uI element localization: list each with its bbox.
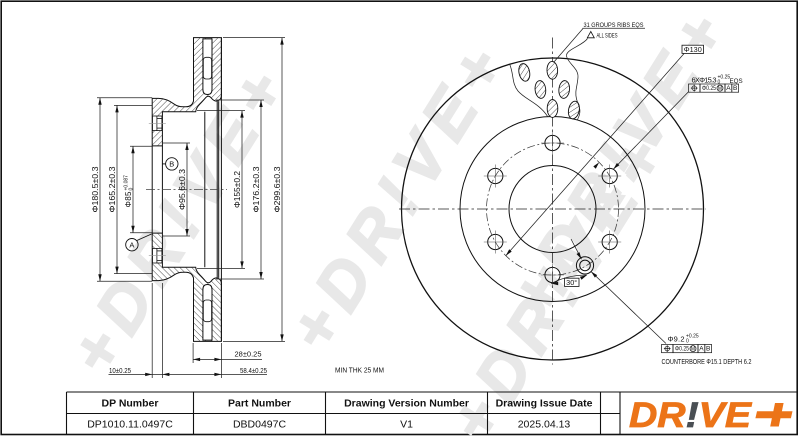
svg-text:Φ9.2: Φ9.2 — [668, 335, 685, 344]
svg-text:30°: 30° — [566, 279, 577, 287]
svg-text:M: M — [718, 86, 722, 92]
svg-text:Φ0.25: Φ0.25 — [702, 85, 716, 92]
svg-text:Φ299.6±0.3: Φ299.6±0.3 — [273, 166, 282, 213]
svg-text:0: 0 — [129, 188, 135, 191]
svg-text:Drawing Issue Date: Drawing Issue Date — [496, 398, 593, 410]
svg-text:Φ176.2±0.3: Φ176.2±0.3 — [252, 166, 261, 213]
svg-text:Part Number: Part Number — [228, 398, 291, 410]
svg-text:Φ180.5±0.3: Φ180.5±0.3 — [91, 166, 100, 213]
svg-text:A: A — [129, 240, 134, 249]
svg-text:B: B — [706, 346, 710, 353]
svg-text:M: M — [691, 347, 695, 353]
svg-text:28±0.25: 28±0.25 — [235, 350, 262, 359]
svg-text:Φ130: Φ130 — [684, 45, 702, 54]
svg-text:ALL SIDES: ALL SIDES — [597, 34, 618, 40]
svg-text:MIN THK 25 MM: MIN THK 25 MM — [335, 366, 384, 375]
svg-text:COUNTERBORE Φ15.1 DEPTH 6.2: COUNTERBORE Φ15.1 DEPTH 6.2 — [662, 359, 752, 366]
svg-text:Φ155±0.2: Φ155±0.2 — [233, 170, 242, 208]
svg-text:0: 0 — [686, 339, 689, 345]
svg-text:A: A — [726, 85, 731, 92]
svg-text:0: 0 — [718, 80, 721, 86]
svg-text:31 GROUPS RIBS EQS: 31 GROUPS RIBS EQS — [584, 22, 645, 29]
svg-text:Φ95.6±0.3: Φ95.6±0.3 — [178, 168, 187, 210]
svg-text:A: A — [699, 346, 704, 353]
svg-text:Drawing Version Number: Drawing Version Number — [344, 398, 469, 410]
svg-text:Φ165.2±0.3: Φ165.2±0.3 — [108, 166, 117, 213]
svg-text:V1: V1 — [400, 419, 413, 431]
svg-text:DP Number: DP Number — [102, 398, 159, 410]
svg-text:58.4±0.25: 58.4±0.25 — [240, 366, 267, 375]
svg-text:B: B — [733, 85, 737, 92]
svg-text:6XΦ15.3: 6XΦ15.3 — [692, 76, 717, 85]
svg-text:10±0.25: 10±0.25 — [109, 366, 131, 375]
svg-text:DBD0497C: DBD0497C — [233, 419, 287, 431]
svg-text:DR!VE: DR!VE — [629, 396, 753, 435]
svg-text:DP1010.11.0497C: DP1010.11.0497C — [87, 419, 173, 431]
svg-text:B: B — [169, 160, 174, 169]
svg-text:Φ0.25: Φ0.25 — [675, 346, 689, 353]
svg-text:2025.04.13: 2025.04.13 — [518, 419, 571, 431]
svg-text:Φ85: Φ85 — [124, 191, 133, 208]
